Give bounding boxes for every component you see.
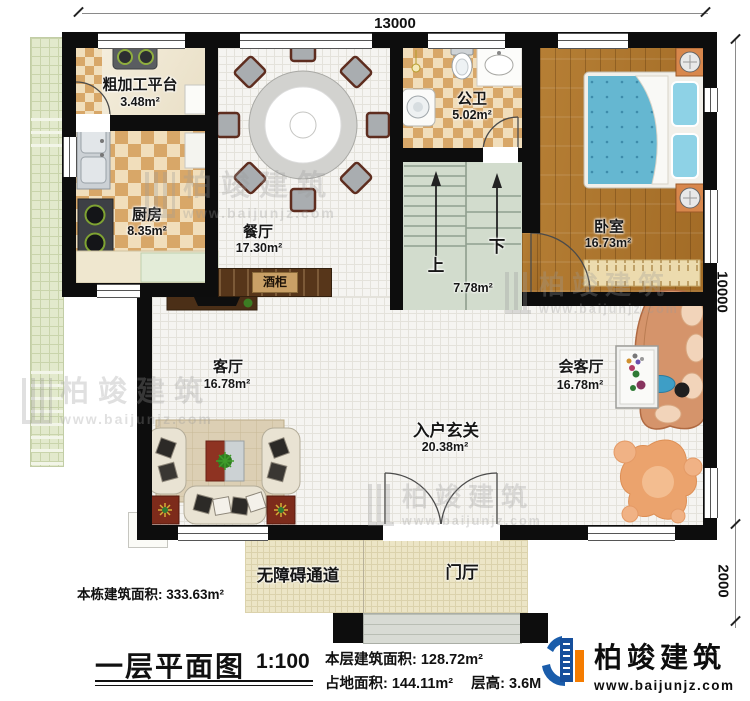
- company-logo-text: 柏竣建筑 www.baijunjz.com: [594, 636, 735, 693]
- wall-dining-stairs: [390, 48, 403, 310]
- room-area-kitchen: 8.35m²: [127, 224, 167, 238]
- room-area-reception: 16.78m²: [557, 378, 604, 392]
- company-url: www.baijunjz.com: [594, 678, 735, 693]
- room-label-reception: 会客厅: [558, 356, 603, 377]
- land-area: 占地面积: 144.11m²: [325, 676, 453, 692]
- wall-left-lower: [137, 297, 152, 540]
- land-area-stat: 占地面积: 144.11m² 层高: 3.6M: [325, 672, 541, 693]
- stairs-up-label: 上: [428, 252, 445, 276]
- ramp-label: 无障碍通道: [257, 562, 340, 586]
- window: [704, 88, 718, 112]
- bedroom-rug: [584, 260, 700, 286]
- room-area-bedroom: 16.73m²: [585, 236, 632, 250]
- plan-title: 一层平面图: [95, 645, 245, 685]
- window: [704, 190, 718, 263]
- window: [97, 284, 140, 298]
- dimension-right-upper: 10000: [714, 271, 731, 313]
- room-label-kitchen: 厨房: [132, 204, 162, 225]
- room-area-dining: 17.30m²: [236, 241, 283, 255]
- window: [63, 137, 77, 177]
- room-label-bathroom: 公卫: [457, 88, 487, 109]
- company-logo: [538, 634, 588, 693]
- coffee-table: [616, 346, 658, 408]
- dining-table-set: [217, 39, 389, 211]
- title-underline: [95, 685, 313, 686]
- room-area-living: 16.78m²: [204, 377, 251, 391]
- wine-cabinet: 酒柜: [218, 268, 332, 297]
- tv-console: [167, 295, 257, 310]
- room-label-living: 客厅: [213, 356, 243, 377]
- floor-height: 层高: 3.6M: [471, 676, 541, 692]
- wall-platform-kitchen: [110, 115, 205, 131]
- window: [98, 33, 185, 49]
- hall-rug: [614, 440, 702, 523]
- room-label-prep-platform: 粗加工平台: [102, 74, 177, 95]
- room-area-entrance-hall: 20.38m²: [422, 440, 469, 454]
- title-underline: [95, 680, 313, 682]
- living-room-table: [206, 441, 244, 481]
- platform-door-opening: [76, 114, 110, 132]
- wall-bedroom-south: [522, 292, 703, 306]
- window: [558, 33, 628, 49]
- plan-scale: 1:100: [256, 650, 310, 674]
- window: [178, 526, 268, 541]
- room-label-bedroom: 卧室: [594, 216, 624, 237]
- wall-stairs-bedroom: [522, 48, 540, 233]
- bath-door-opening: [483, 147, 518, 163]
- window: [704, 468, 718, 518]
- window: [428, 33, 505, 49]
- dimension-right-lower: 2000: [715, 564, 732, 597]
- wine-cabinet-label: 酒柜: [252, 272, 298, 293]
- room-area-prep-platform: 3.48m²: [120, 95, 160, 109]
- wall-kitchen-south: [62, 283, 218, 297]
- dimension-top: 13000: [374, 15, 416, 32]
- window: [588, 526, 675, 541]
- company-logo-icon: [538, 634, 588, 688]
- floor-area-stat: 本层建筑面积: 128.72m²: [325, 648, 483, 669]
- company-name: 柏竣建筑: [594, 636, 735, 676]
- bed: [584, 72, 704, 188]
- foyer-label: 门厅: [446, 559, 479, 583]
- floor-plan-canvas: 13000 10000 2000: [0, 0, 750, 701]
- room-area-bathroom: 5.02m²: [452, 108, 492, 122]
- wall-kitchen-dining: [205, 48, 218, 283]
- total-building-area: 本栋建筑面积: 333.63m²: [77, 583, 224, 603]
- entry-door-opening: [383, 524, 500, 541]
- window: [240, 33, 372, 49]
- stairs-area: 7.78m²: [453, 281, 493, 295]
- stairs-down-label: 下: [489, 233, 506, 257]
- room-label-dining: 餐厅: [243, 221, 273, 242]
- room-label-entrance-hall: 入户玄关: [413, 417, 479, 441]
